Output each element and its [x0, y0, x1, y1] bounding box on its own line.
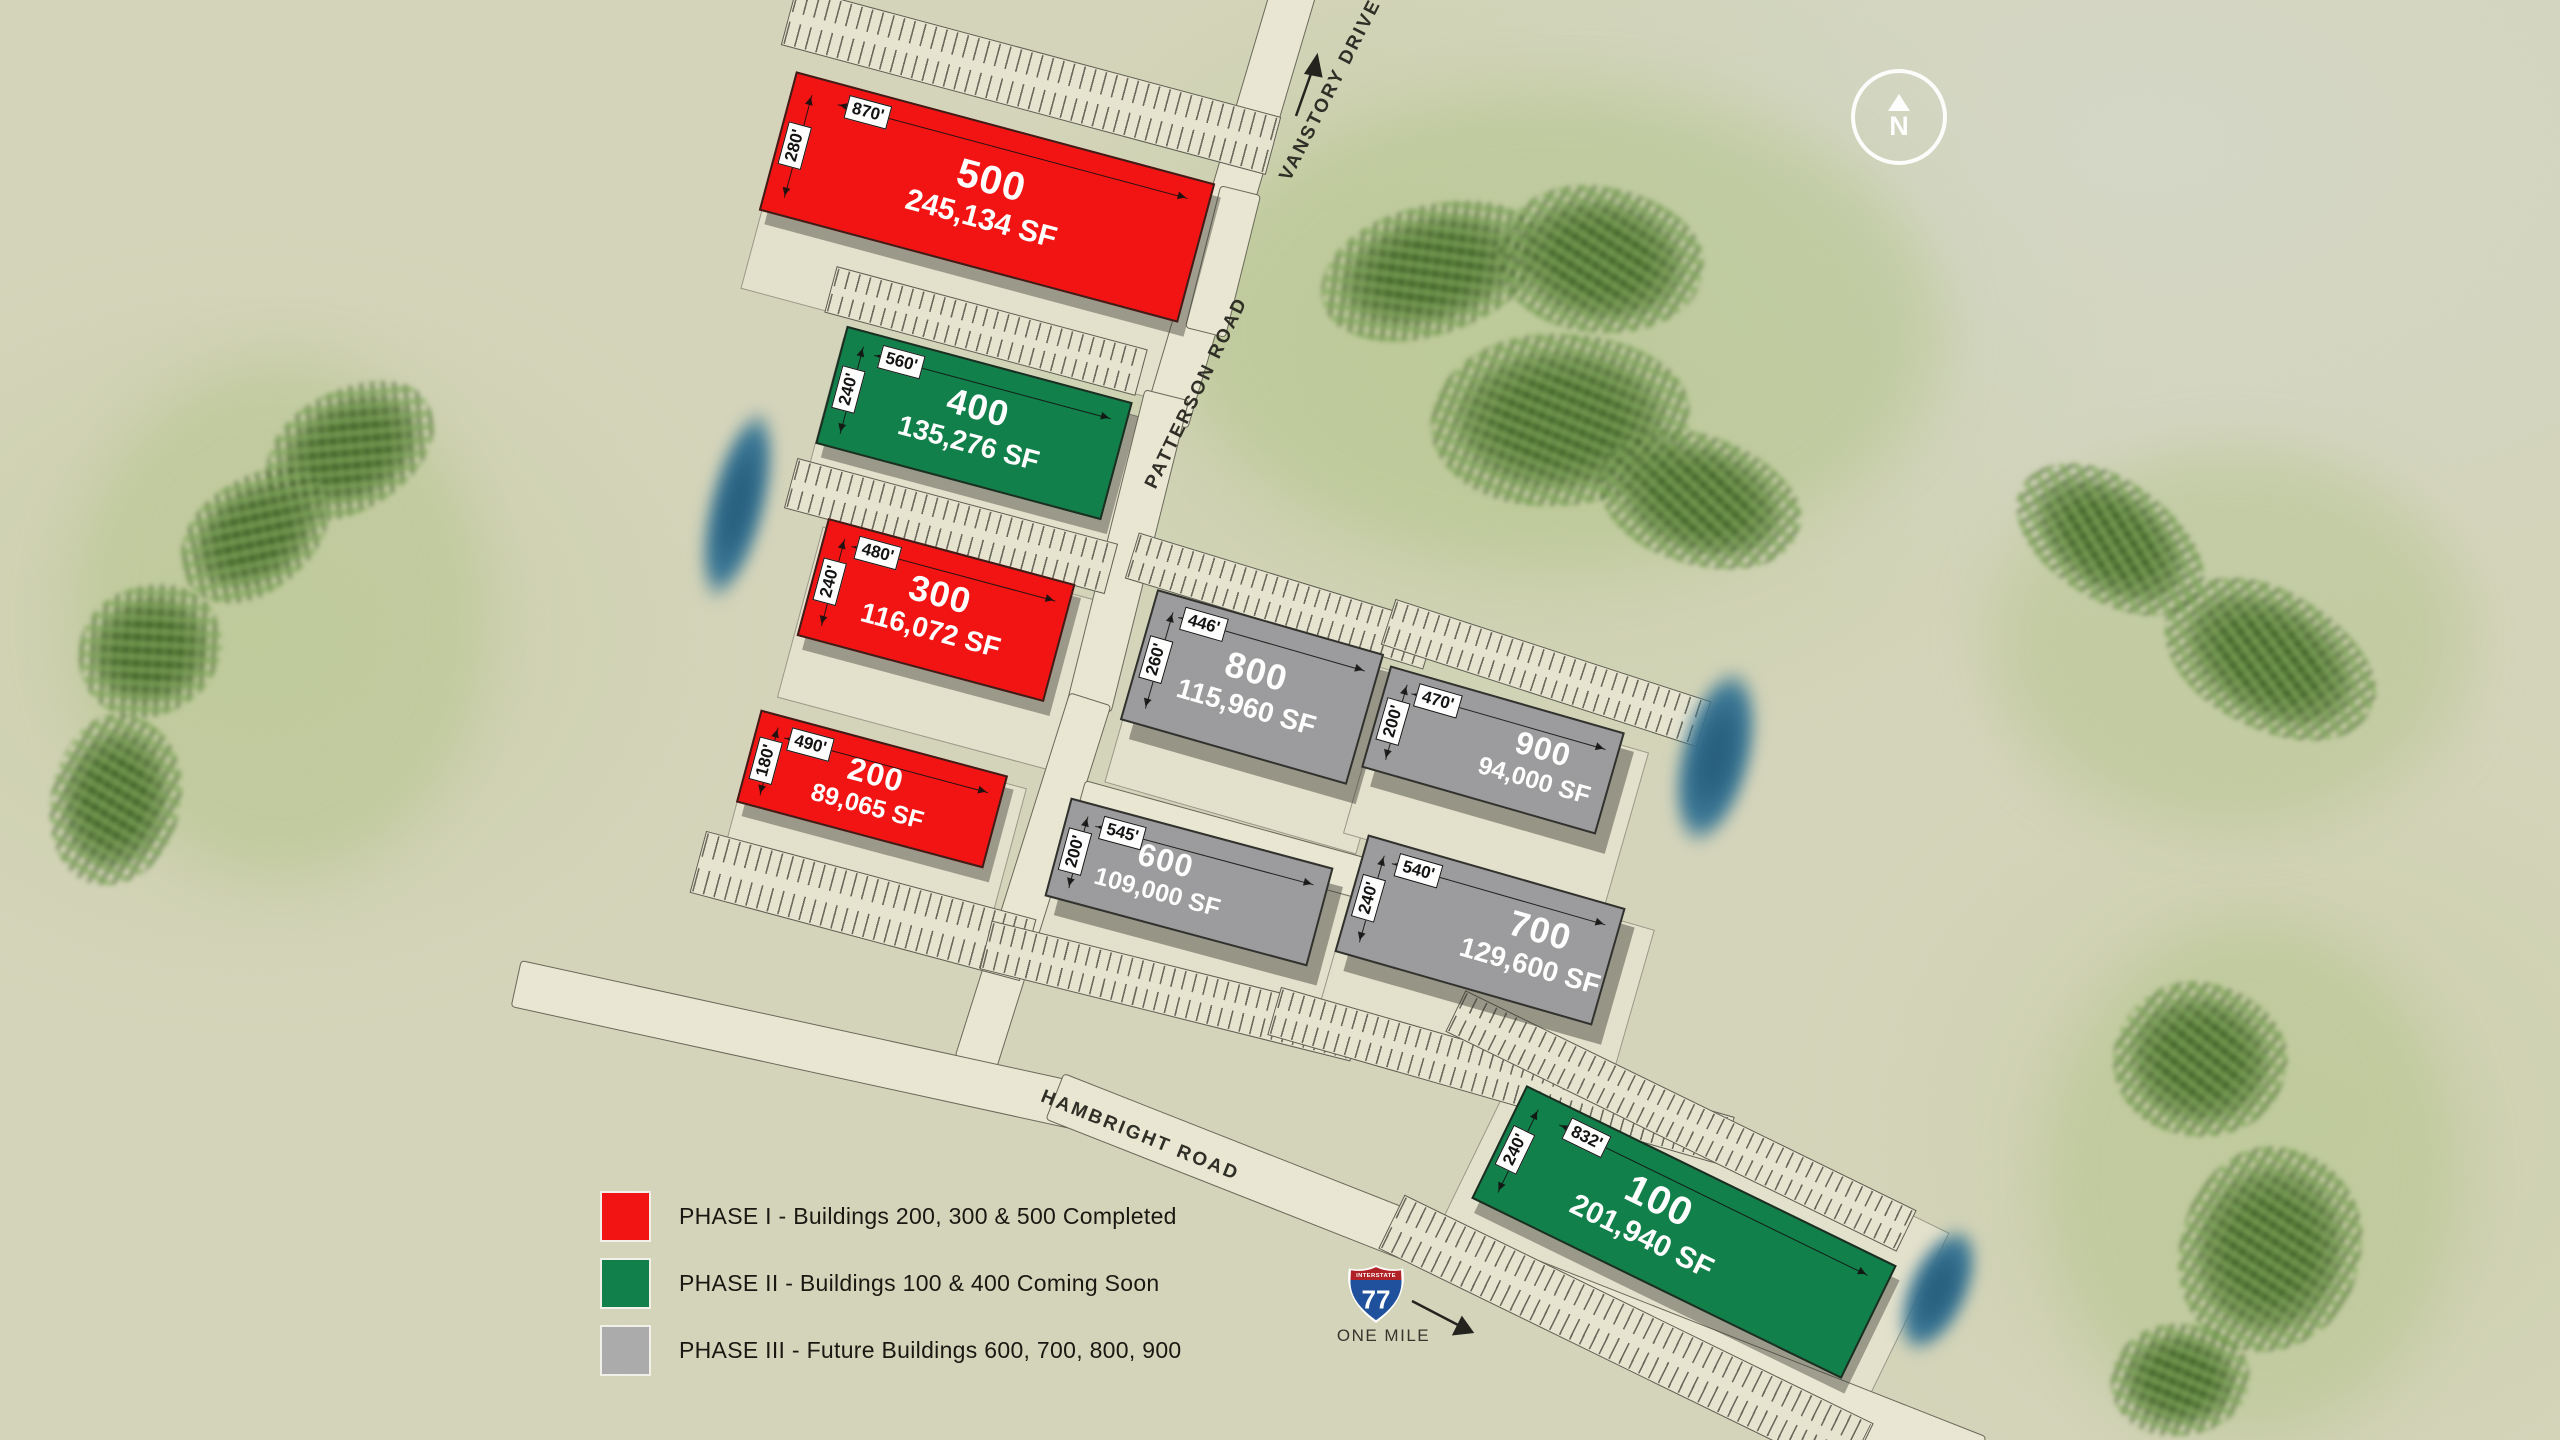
- building-label: 500 245,134 SF: [902, 138, 1073, 256]
- phase1-color-swatch: [600, 1191, 651, 1242]
- north-arrow-icon: [1888, 94, 1910, 111]
- length-dimension-tag: 480': [853, 536, 902, 571]
- interstate-text: INTERSTATE: [1356, 1273, 1396, 1279]
- compass-north-label: N: [1889, 113, 1909, 140]
- building-label: 800 115,960 SF: [1173, 632, 1331, 742]
- width-dimension-tag: 260': [1138, 635, 1173, 684]
- length-dimension-tag: 870': [843, 95, 892, 130]
- building-label: 400 135,276 SF: [895, 369, 1054, 478]
- legend-item-phase3: PHASE III - Future Buildings 600, 700, 8…: [600, 1326, 1182, 1374]
- legend-label: PHASE III - Future Buildings 600, 700, 8…: [679, 1337, 1182, 1364]
- building-label: 300 116,072 SF: [857, 556, 1014, 664]
- phase3-color-swatch: [600, 1325, 651, 1376]
- width-dimension-tag: 200': [1058, 827, 1093, 876]
- tree-cluster: [2100, 1315, 2260, 1440]
- interstate-77-shield-icon: INTERSTATE 77: [1347, 1263, 1405, 1325]
- length-dimension-tag: 560': [877, 345, 926, 380]
- building-label: 900 94,000 SF: [1475, 716, 1604, 811]
- length-dimension-tag: 446': [1179, 607, 1228, 642]
- building-label: 700 129,600 SF: [1456, 891, 1615, 1002]
- legend-label: PHASE II - Buildings 100 & 400 Coming So…: [679, 1270, 1160, 1297]
- compass: N: [1851, 69, 1947, 165]
- phase2-color-swatch: [600, 1258, 651, 1309]
- width-dimension-tag: 280': [777, 121, 812, 170]
- route-number: 77: [1361, 1285, 1390, 1315]
- width-dimension-tag: 180': [748, 736, 783, 785]
- width-dimension-tag: 240': [831, 365, 866, 414]
- length-dimension-tag: 490': [786, 727, 835, 762]
- legend-label: PHASE I - Buildings 200, 300 & 500 Compl…: [679, 1203, 1177, 1230]
- length-dimension-tag: 832': [1561, 1117, 1611, 1158]
- legend-item-phase2: PHASE II - Buildings 100 & 400 Coming So…: [600, 1259, 1182, 1307]
- one-mile-label: ONE MILE: [1316, 1326, 1451, 1346]
- width-dimension-tag: 240': [812, 557, 847, 606]
- length-dimension-tag: 540': [1394, 853, 1443, 888]
- water-feature: [1642, 634, 1790, 880]
- length-dimension-tag: 470': [1413, 683, 1462, 718]
- legend-item-phase1: PHASE I - Buildings 200, 300 & 500 Compl…: [600, 1192, 1182, 1240]
- site-plan-canvas: 870' 280' 500 245,134 SF 560' 240' 400 1…: [0, 0, 2560, 1440]
- width-dimension-tag: 240': [1351, 873, 1386, 922]
- width-dimension-tag: 200': [1375, 697, 1410, 746]
- legend: PHASE I - Buildings 200, 300 & 500 Compl…: [600, 1192, 1182, 1393]
